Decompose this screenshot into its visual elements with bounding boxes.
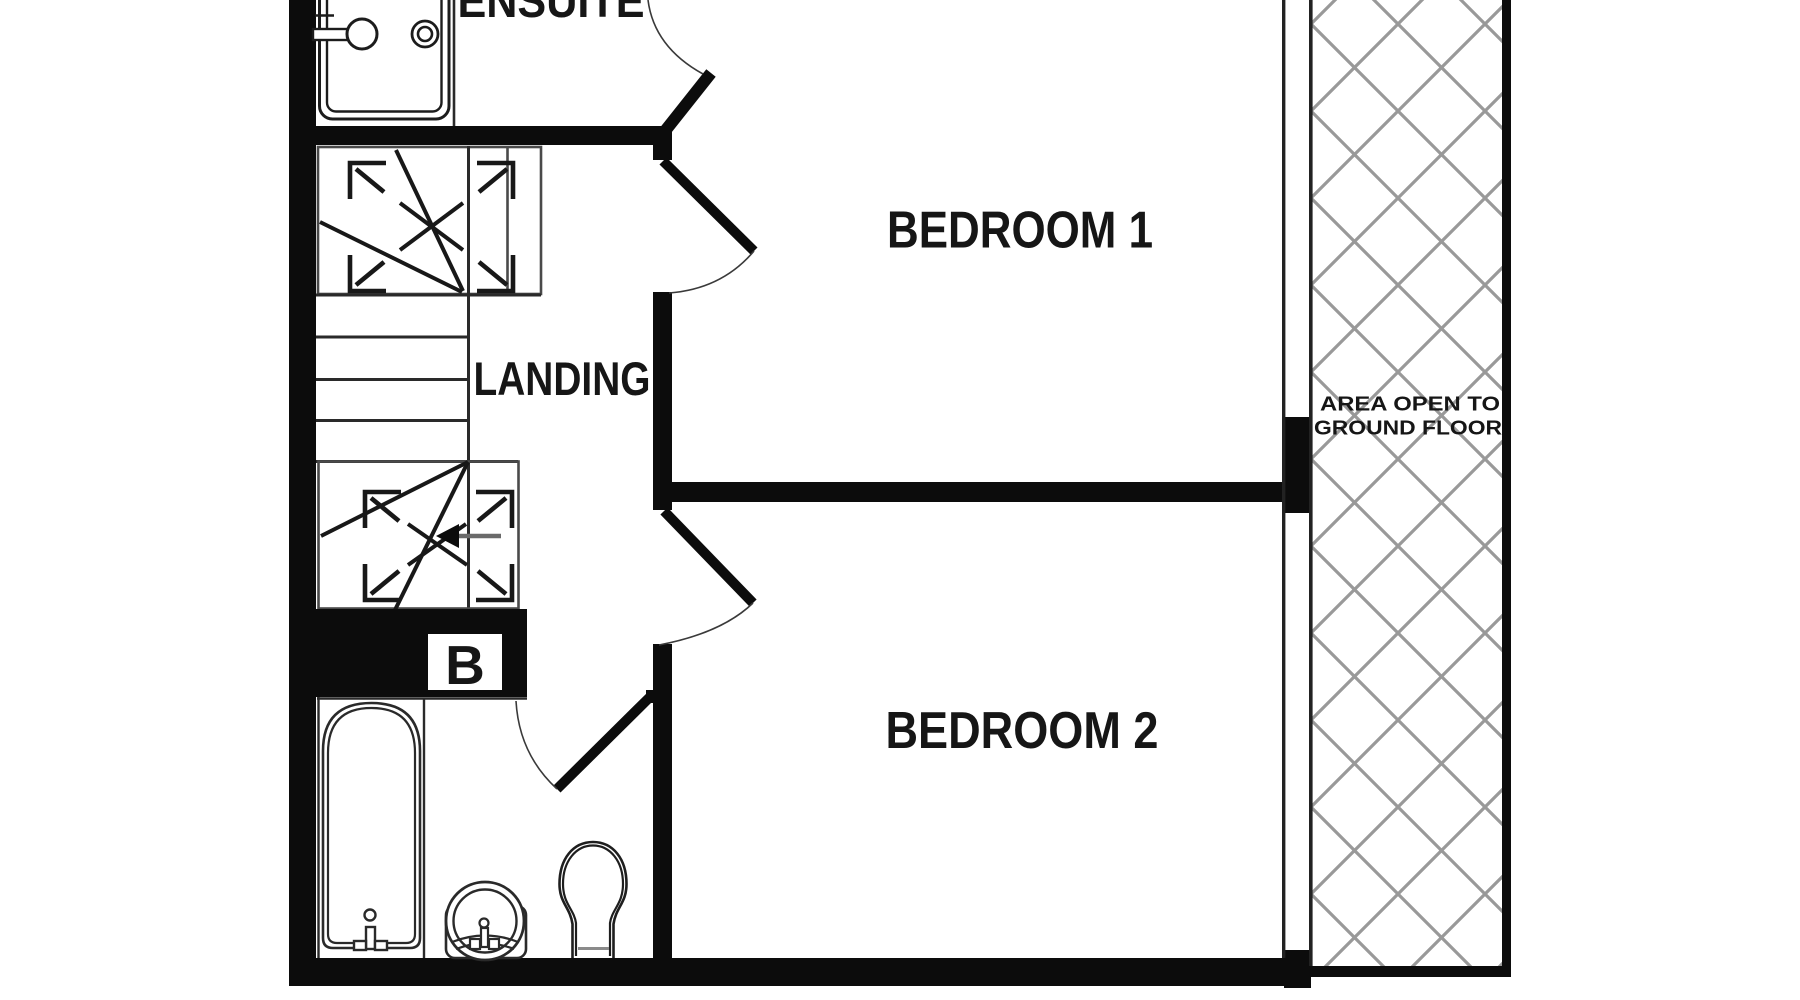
svg-text:AREA OPEN TO: AREA OPEN TO	[1320, 393, 1500, 416]
svg-text:B: B	[445, 634, 485, 696]
svg-text:ENSUITE: ENSUITE	[458, 0, 645, 27]
svg-text:BEDROOM 1: BEDROOM 1	[887, 202, 1153, 260]
svg-text:BEDROOM 2: BEDROOM 2	[886, 702, 1159, 760]
svg-text:GROUND FLOOR: GROUND FLOOR	[1314, 417, 1502, 440]
svg-text:LANDING: LANDING	[474, 352, 651, 405]
